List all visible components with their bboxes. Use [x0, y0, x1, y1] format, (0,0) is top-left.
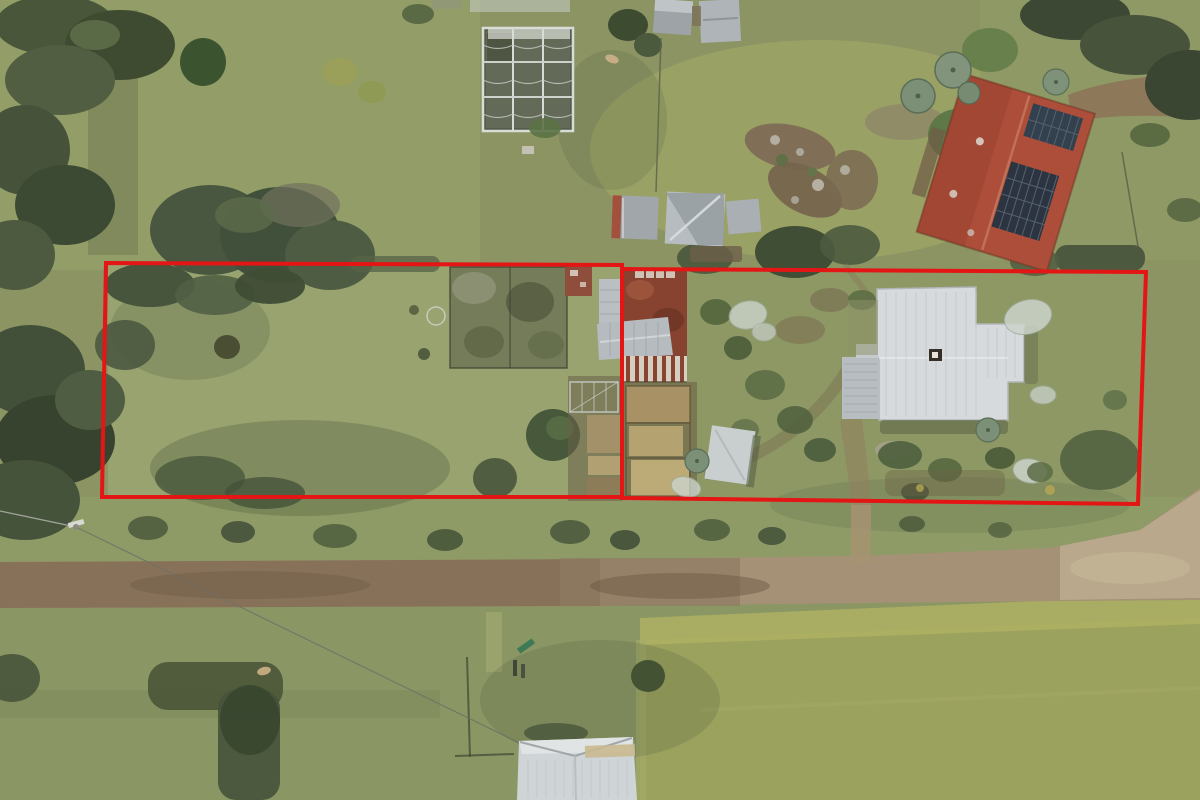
- shed-top-junk: [692, 6, 701, 26]
- power-pole-dot: [73, 524, 79, 530]
- utility-post-2: [521, 664, 525, 678]
- tree-left-lot-edge-4: [55, 370, 125, 430]
- shed-c: [726, 199, 762, 235]
- enclosure-green-patch: [464, 326, 504, 358]
- house-path-left: [848, 300, 878, 355]
- enclosure-dark-patch: [506, 282, 554, 322]
- bush-bottom-center: [631, 660, 665, 692]
- bush-dark-top: [180, 38, 226, 86]
- water-tank-4-dot: [1054, 80, 1058, 84]
- bush-rl-bottom-3: [985, 447, 1015, 469]
- rock-4: [791, 196, 799, 204]
- tank-by-small-shed-dot: [695, 459, 699, 463]
- hedge-bottom-left-dark: [220, 685, 280, 755]
- rust-shed-small: [565, 265, 592, 296]
- tree-lot-top-3: [235, 268, 305, 304]
- road-dark-patch-1: [130, 571, 370, 599]
- shed-top-2: [699, 0, 741, 43]
- bush-rl-1: [700, 299, 732, 325]
- net-blob-mid-lot-2: [752, 323, 776, 341]
- top-edge-structure-2: [432, 0, 462, 9]
- tree-right-lot-top-2: [820, 225, 880, 265]
- rock-3: [812, 179, 824, 191]
- rust-shed-speck-1: [570, 270, 578, 276]
- bed-straw-left-1: [587, 415, 620, 453]
- garden-strip-rl-bottom: [885, 470, 1005, 496]
- hedge-right-lot-top: [1055, 245, 1145, 271]
- lawn-bush-2: [409, 305, 419, 315]
- mown-streak: [486, 612, 502, 672]
- bush-row-4: [427, 529, 463, 551]
- top-edge-structure-1: [470, 0, 570, 12]
- rock-2: [796, 148, 804, 156]
- bush-row-7: [694, 519, 730, 541]
- aerial-photo-stage: [0, 0, 1200, 800]
- yellow-tuft-2: [916, 484, 924, 492]
- driveway-into-lot: [851, 503, 871, 563]
- bed-straw-right-2: [629, 426, 683, 456]
- rock-5: [840, 165, 850, 175]
- scrub-rl-right-edge: [1060, 430, 1140, 490]
- main-house-chimney-cap: [932, 352, 938, 358]
- bush-rl-2: [724, 336, 752, 360]
- bush-rl-3: [745, 370, 785, 400]
- fruit-cage-white-top: [488, 29, 570, 39]
- yellow-tuft-1: [1045, 485, 1055, 495]
- rock-garden-3: [826, 150, 878, 210]
- rock-tuft-2: [807, 167, 817, 177]
- junk-below-sheds: [690, 246, 742, 262]
- bush-row-1: [128, 516, 168, 540]
- bush-row-3: [313, 524, 357, 548]
- bush-rl-5: [804, 438, 836, 462]
- fruit-cage-tree-overhang: [529, 118, 561, 138]
- tree-top-left-3: [5, 45, 115, 115]
- rock-tuft-1: [776, 154, 788, 166]
- bush-row-2: [221, 521, 255, 543]
- bush-rl-4: [777, 406, 813, 434]
- bush-row-8: [758, 527, 786, 545]
- tank-below-house-dot: [986, 428, 990, 432]
- net-blob-small: [1030, 386, 1056, 404]
- bed-straw-left-3: [587, 477, 621, 496]
- bush-row-6: [610, 530, 640, 550]
- bed-straw-right-1: [626, 386, 690, 422]
- water-tank-1-dot: [916, 94, 921, 99]
- rock-1: [770, 135, 780, 145]
- bush-row-9: [899, 516, 925, 532]
- rusty-roof-patch-1: [626, 280, 654, 300]
- bed-straw-left-2: [588, 456, 620, 475]
- bush-row-10: [988, 522, 1012, 538]
- road-pebble-patch: [1070, 552, 1190, 584]
- striped-wall-stripes: [628, 356, 682, 382]
- tree-mid-top-2: [634, 33, 662, 57]
- water-tank-2-dot: [951, 68, 956, 73]
- scrub-lot-bottom-2: [225, 477, 305, 509]
- aerial-photo: [0, 0, 1200, 800]
- enclosure-green-patch-2: [528, 331, 564, 359]
- bush-rl-bottom-1: [878, 441, 922, 469]
- bush-yellow-1: [322, 58, 358, 86]
- bush-rl-right: [1103, 390, 1127, 410]
- bush-left-lot-small: [214, 335, 240, 359]
- rust-shed-speck-2: [580, 282, 586, 287]
- bush-right-of-drive: [1130, 123, 1170, 147]
- bush-row-5: [550, 520, 590, 544]
- shadow-blob-below-bush: [473, 458, 517, 498]
- mulch-rl-2: [810, 288, 850, 312]
- gum-canopy-highlight: [215, 197, 275, 233]
- bush-rl-bottom-4: [1027, 462, 1053, 482]
- water-tank-3: [958, 82, 980, 104]
- bush-small-top: [402, 4, 434, 24]
- shed-a-red-edge: [611, 195, 621, 238]
- tree-top-left-highlight: [70, 20, 120, 50]
- bottom-building-ridge: [575, 756, 576, 800]
- road-dark-patch-2: [590, 573, 770, 599]
- mulch-rl-1: [775, 316, 825, 344]
- bush-yellow-2: [358, 81, 386, 103]
- enclosure-silvery-patch: [452, 272, 496, 304]
- bottom-building-deck: [585, 744, 635, 758]
- concrete-block: [522, 146, 534, 154]
- utility-post-1: [513, 660, 517, 676]
- lawn-bush-1: [418, 348, 430, 360]
